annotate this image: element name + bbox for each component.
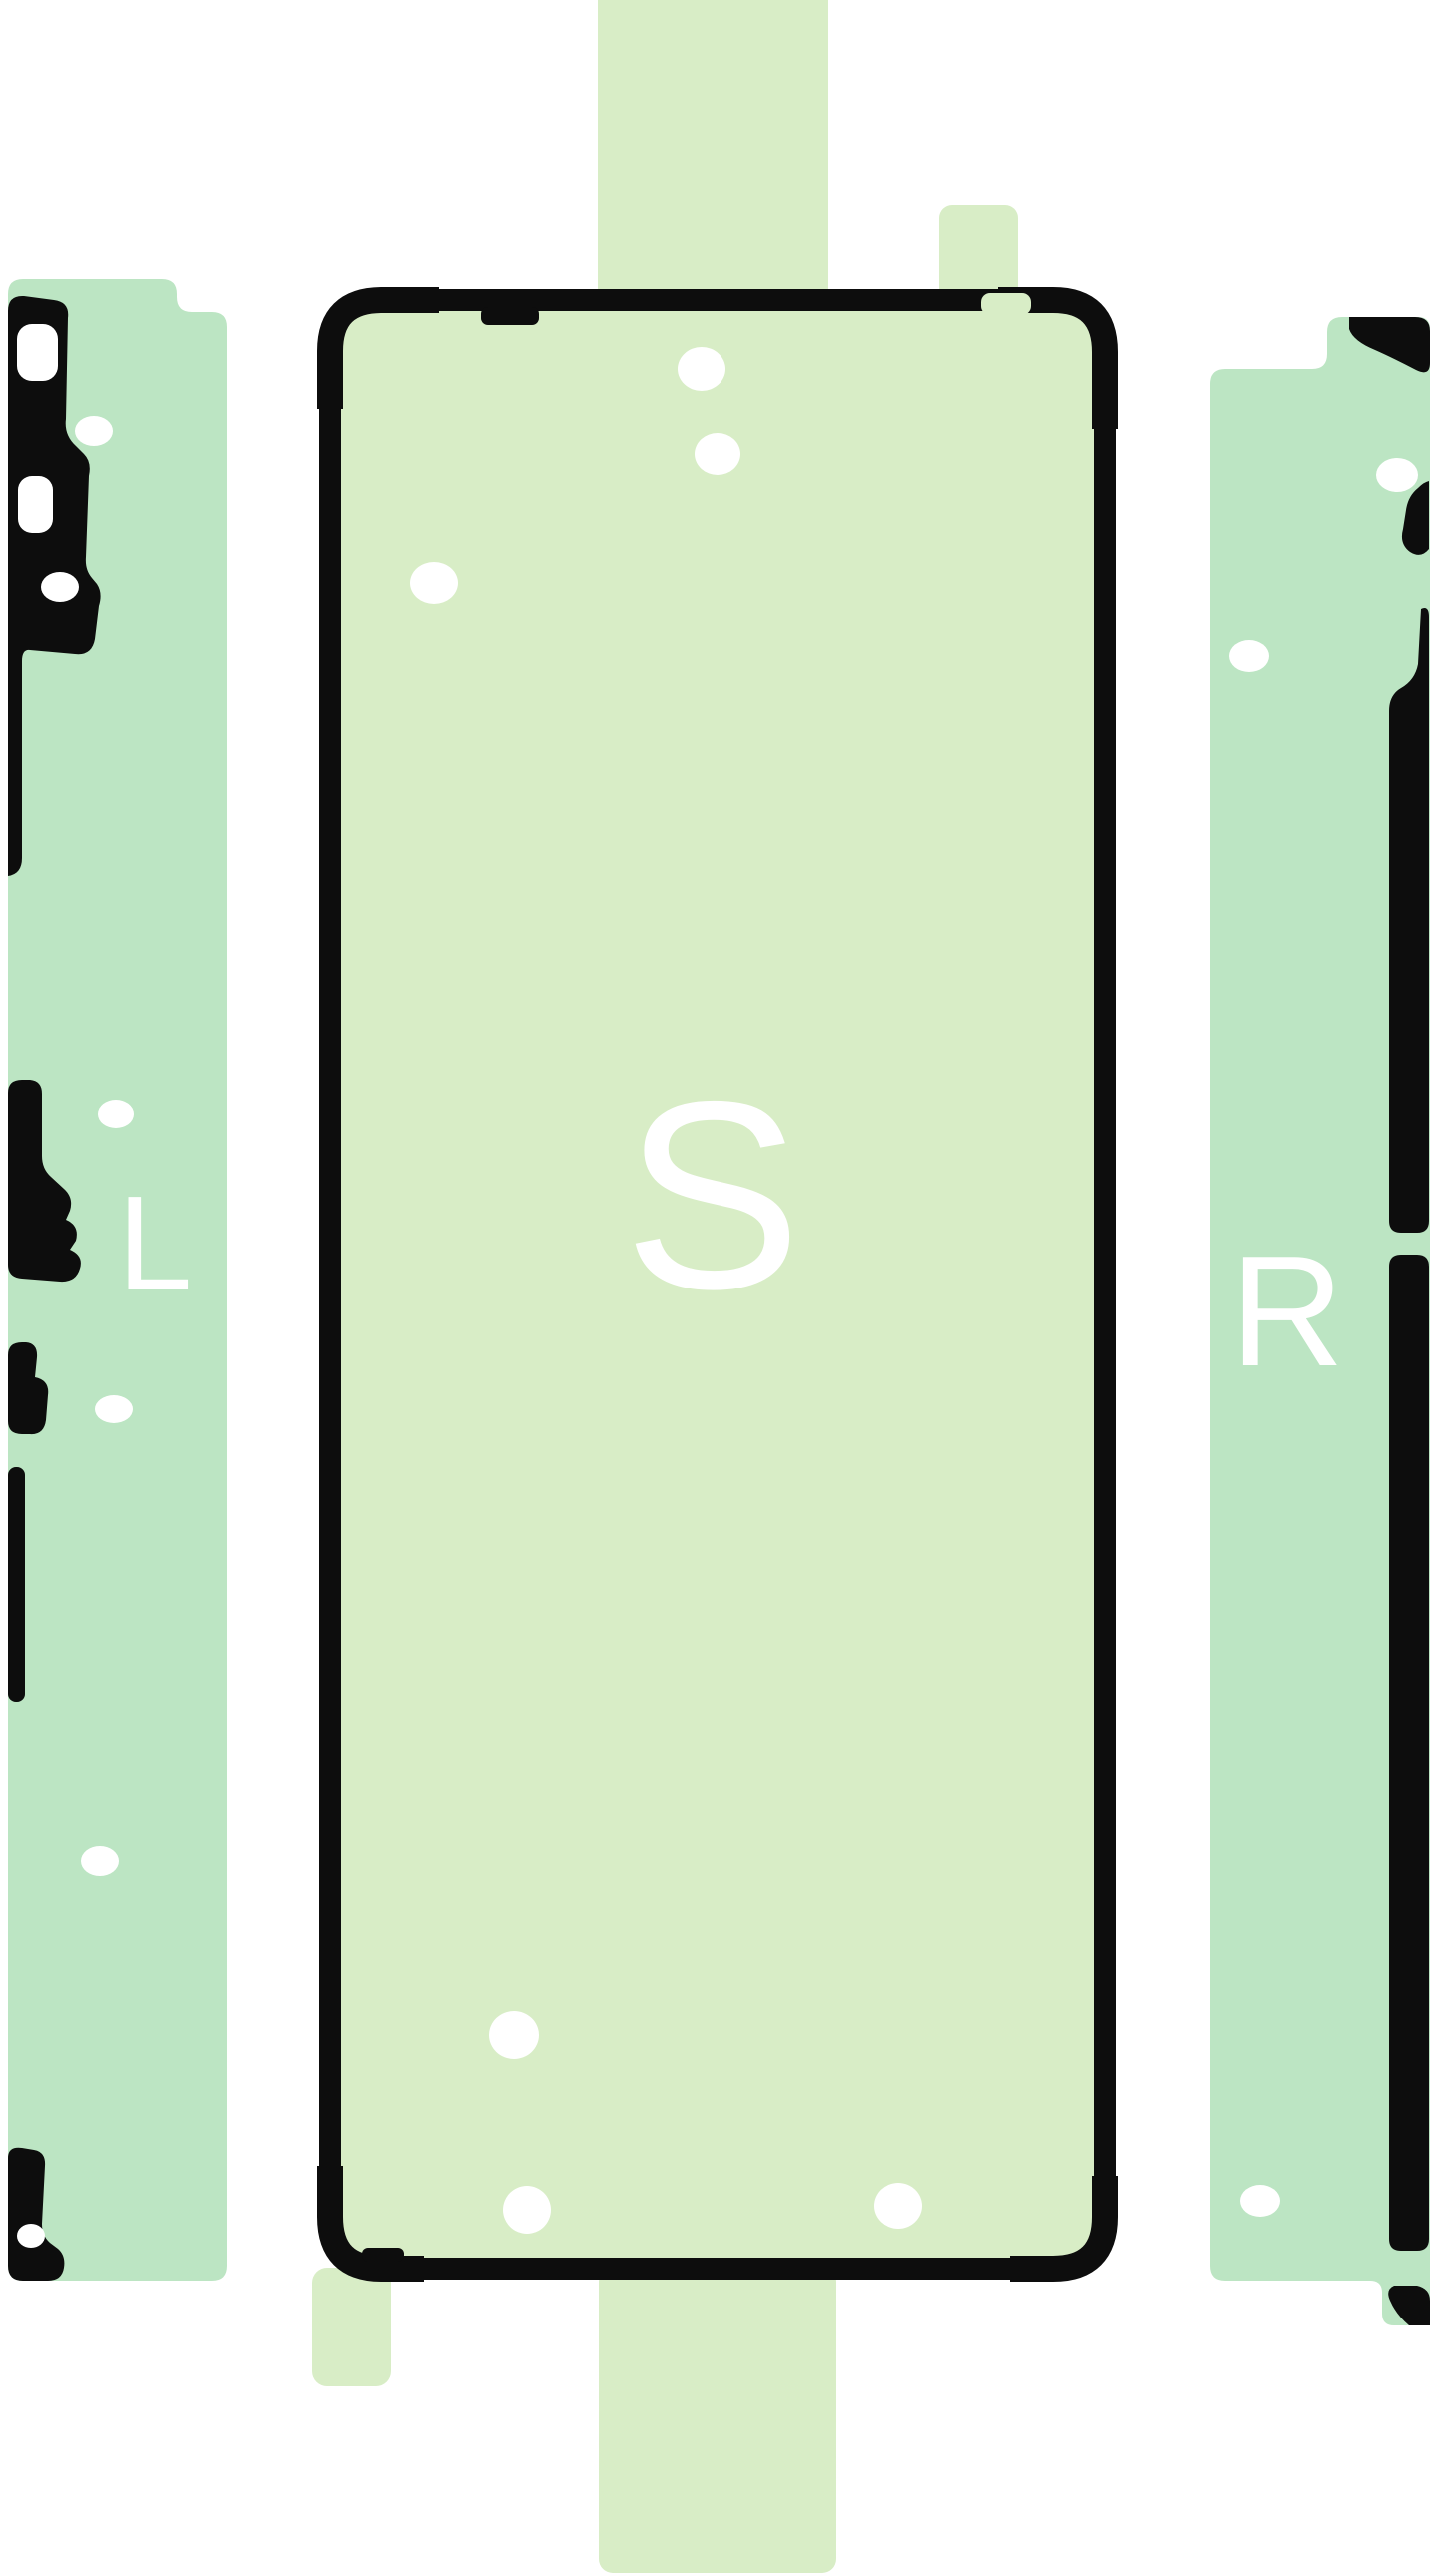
left-strip: L (8, 279, 227, 2281)
adhesive-set-diagram: S L R (0, 0, 1442, 2576)
hole (41, 572, 79, 602)
left-strip-ink-bar (8, 1467, 25, 1702)
top-edge-relief (981, 293, 1031, 315)
bottom-left-liner-tab (312, 2268, 391, 2386)
hole (98, 1100, 134, 1128)
top-edge-notch (481, 307, 539, 325)
center-sticker: S (330, 293, 1105, 2269)
hole (678, 347, 725, 391)
bottom-edge-notch (362, 2248, 404, 2262)
right-strip-ink-bar2 (1389, 1255, 1429, 2251)
top-liner-tab (598, 0, 828, 311)
hole (503, 2186, 551, 2234)
left-strip-cutout (18, 476, 53, 533)
hole (874, 2183, 922, 2229)
hole (1229, 640, 1269, 672)
bottom-liner-tab (599, 2268, 836, 2573)
center-sticker-label: S (624, 1045, 802, 1344)
hole (81, 1846, 119, 1876)
hole (95, 1395, 133, 1423)
hole (75, 416, 113, 446)
right-strip-ink-bar1 (1389, 608, 1429, 1233)
right-strip-label: R (1230, 1224, 1344, 1399)
hole (17, 2224, 45, 2248)
diagram-canvas: S L R (0, 0, 1442, 2576)
left-strip-cutout (17, 324, 58, 381)
hole (410, 562, 458, 604)
hole (1240, 2185, 1280, 2217)
left-strip-label: L (117, 1168, 192, 1318)
hole (695, 433, 740, 475)
right-strip: R (1210, 317, 1430, 2325)
hole (489, 2011, 539, 2059)
hole (1376, 458, 1418, 492)
